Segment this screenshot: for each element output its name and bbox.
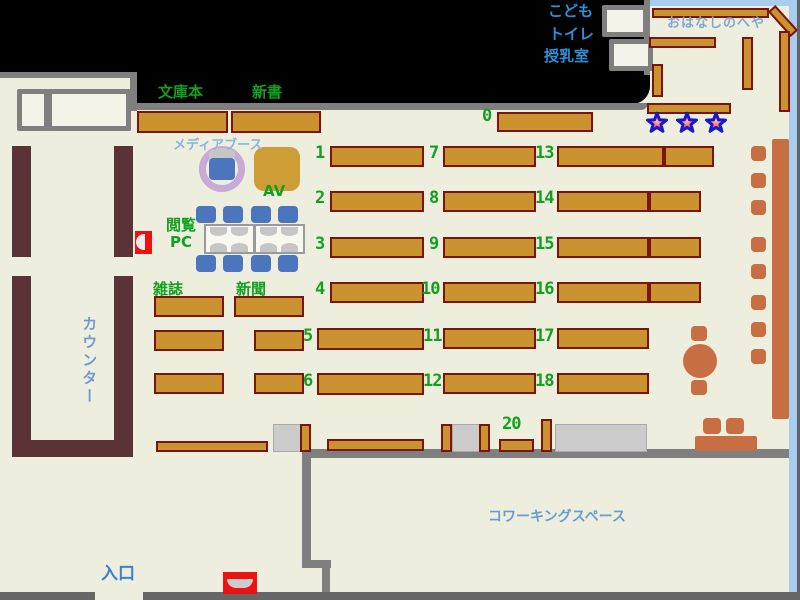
- shelf-number-3: 3: [315, 234, 324, 254]
- shelf-number-6: 6: [303, 371, 312, 391]
- library-floor-map: こどもトイレ授乳室おはなしのへや文庫本新書メディアブースAV閲覧 PC雑誌新聞カ…: [0, 0, 800, 600]
- table-seat: [691, 380, 707, 395]
- shelf-number-0: 0: [482, 106, 491, 126]
- bookshelf: [330, 282, 424, 303]
- bookshelf: [254, 330, 304, 351]
- story-room-border: [789, 0, 797, 592]
- counter-desk: [12, 276, 31, 457]
- shelf-number-11: 11: [423, 326, 441, 346]
- bookshelf: [557, 191, 649, 212]
- bookshelf: [557, 237, 649, 258]
- bottom-wall: [0, 592, 95, 600]
- bookshelf: [649, 37, 716, 48]
- shelf-number-10: 10: [421, 279, 439, 299]
- room-fixture: [47, 89, 131, 131]
- bookshelf: [327, 439, 424, 451]
- label-newspapers: 新聞: [236, 281, 266, 298]
- star-icon: [645, 111, 669, 139]
- round-table: [683, 344, 717, 378]
- pc-monitor: [260, 243, 277, 252]
- bookshelf: [154, 296, 224, 317]
- bookshelf: [330, 146, 424, 167]
- shelf-number-13: 13: [535, 143, 553, 163]
- bookshelf: [443, 328, 536, 349]
- label-new-books: 新書: [252, 84, 282, 101]
- label-entrance: 入口: [101, 565, 135, 585]
- bookshelf: [557, 328, 649, 349]
- bookshelf: [541, 419, 552, 452]
- shelf-number-18: 18: [535, 371, 553, 391]
- bookshelf: [317, 373, 424, 395]
- book-cart: [555, 424, 647, 452]
- corner-seat: [726, 418, 744, 434]
- pc-monitor: [281, 243, 298, 252]
- star-icon: [675, 111, 699, 139]
- bookshelf: [557, 282, 649, 303]
- bookshelf: [317, 328, 424, 350]
- return-post: [135, 231, 152, 254]
- window-seat: [751, 237, 766, 252]
- shelf-number-15: 15: [535, 234, 553, 254]
- shelf-number-2: 2: [315, 188, 324, 208]
- book-cart: [273, 424, 301, 452]
- shelf-number-17: 17: [535, 326, 553, 346]
- shelf-number-14: 14: [535, 188, 553, 208]
- slot-icon: [227, 579, 253, 588]
- pc-monitor: [210, 243, 227, 252]
- pc-monitor: [231, 243, 248, 252]
- coworking-wall: [322, 560, 330, 593]
- bookshelf: [254, 373, 304, 394]
- window-counter: [772, 139, 789, 419]
- room-fixture: [609, 39, 653, 71]
- bookshelf: [443, 282, 536, 303]
- label-toilet: トイレ: [549, 26, 594, 43]
- bookshelf: [649, 282, 701, 303]
- bookshelf: [649, 237, 701, 258]
- table-seat: [691, 326, 707, 341]
- shelf-number-5: 5: [303, 326, 312, 346]
- book-cart: [452, 424, 480, 452]
- bookshelf: [742, 37, 753, 90]
- star-icon: [704, 111, 728, 139]
- pc-monitor: [210, 227, 227, 236]
- window-seat: [751, 322, 766, 337]
- label-story-room: おはなしのへや: [667, 17, 765, 32]
- bookshelf: [557, 373, 649, 394]
- label-media-booth: メディアブース: [173, 139, 262, 154]
- window-seat: [751, 349, 766, 364]
- counter-desk: [114, 146, 133, 257]
- media-booth-seat: [209, 158, 235, 180]
- bookshelf: [557, 146, 664, 167]
- pc-chair: [196, 255, 216, 272]
- window-seat: [751, 173, 766, 188]
- bookshelf: [234, 296, 304, 317]
- shelf-number-8: 8: [429, 188, 438, 208]
- bookshelf: [231, 111, 321, 133]
- label-magazines: 雑誌: [153, 281, 183, 298]
- bookshelf: [779, 31, 790, 112]
- pc-monitor: [260, 227, 277, 236]
- pc-chair: [223, 206, 243, 223]
- shelf-number-20: 20: [502, 414, 520, 434]
- bookshelf: [649, 191, 701, 212]
- label-counter: カウンター: [80, 316, 97, 406]
- label-browsing-pc: 閲覧 PC: [166, 217, 196, 252]
- shelf-number-12: 12: [423, 371, 441, 391]
- window-seat: [751, 295, 766, 310]
- bookshelf: [137, 111, 228, 133]
- label-nursing-room: 授乳室: [544, 48, 589, 65]
- corner-seat: [703, 418, 721, 434]
- pc-monitor: [231, 227, 248, 236]
- pc-chair: [278, 255, 298, 272]
- bookshelf: [441, 424, 452, 452]
- room-fixture: [602, 5, 648, 37]
- bookshelf: [479, 424, 490, 452]
- bookshelf: [154, 373, 224, 394]
- shelf-number-16: 16: [535, 279, 553, 299]
- counter-desk: [12, 440, 133, 457]
- bookshelf: [443, 237, 536, 258]
- label-coworking: コワーキングスペース: [488, 509, 626, 525]
- shelf-number-1: 1: [315, 143, 324, 163]
- bookshelf: [154, 330, 224, 351]
- counter-desk: [12, 146, 31, 257]
- bookshelf: [300, 424, 311, 452]
- pc-chair: [223, 255, 243, 272]
- shelf-number-4: 4: [315, 279, 324, 299]
- slot-icon: [136, 234, 145, 250]
- bookshelf: [497, 112, 593, 132]
- bookshelf: [443, 146, 536, 167]
- shelf-number-9: 9: [429, 234, 438, 254]
- pc-chair: [251, 255, 271, 272]
- counter-desk: [114, 276, 133, 442]
- corner-bench: [695, 436, 757, 451]
- pc-monitor: [281, 227, 298, 236]
- shelf-number-7: 7: [429, 143, 438, 163]
- bookshelf: [664, 146, 714, 167]
- bookshelf: [330, 237, 424, 258]
- label-av: AV: [263, 183, 285, 200]
- coworking-wall: [302, 449, 311, 568]
- window-seat: [751, 200, 766, 215]
- window-seat: [751, 146, 766, 161]
- wall: [0, 72, 137, 78]
- return-post: [223, 572, 257, 594]
- bookshelf: [156, 441, 268, 452]
- bookshelf: [499, 439, 534, 452]
- pc-chair: [251, 206, 271, 223]
- pc-chair: [278, 206, 298, 223]
- pc-chair: [196, 206, 216, 223]
- wall: [130, 103, 648, 110]
- label-kodomo: こども: [548, 3, 593, 20]
- room-fixture: [17, 89, 49, 131]
- bookshelf: [443, 191, 536, 212]
- bookshelf: [443, 373, 536, 394]
- window-seat: [751, 264, 766, 279]
- bookshelf: [330, 191, 424, 212]
- bookshelf: [652, 64, 663, 97]
- label-paperbacks: 文庫本: [158, 84, 203, 101]
